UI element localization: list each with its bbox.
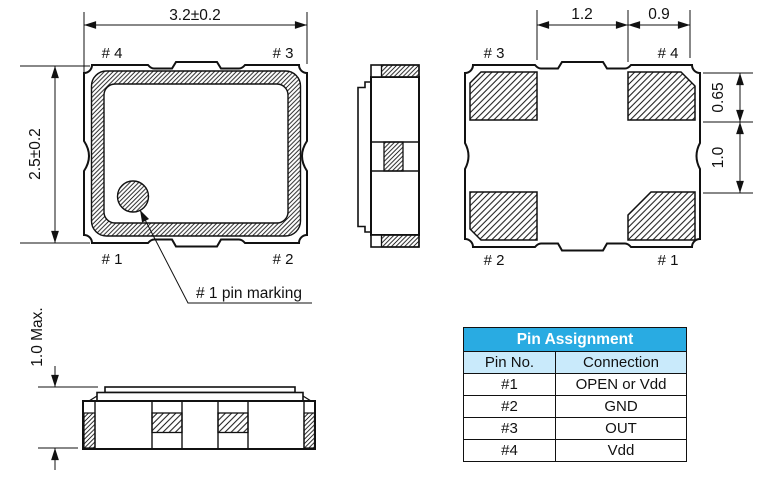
side-view-top-strip-hatch xyxy=(382,65,420,77)
bottom-view-pin3-label: # 3 xyxy=(484,45,505,62)
pin-no-cell: #4 xyxy=(464,440,556,462)
pin1-marking-label: # 1 pin marking xyxy=(196,285,302,302)
side-view-lid-outline xyxy=(358,82,371,232)
bottom-view-pin1-label: # 1 xyxy=(658,252,679,269)
front-view-right-castellation-hatch xyxy=(304,413,315,448)
table-header-row: Pin No. Connection xyxy=(464,352,687,374)
bottom-view-dim-1_0-label: 1.0 xyxy=(710,146,727,168)
front-view-lid-base xyxy=(97,393,303,402)
table-title: Pin Assignment xyxy=(464,328,687,352)
table-row: #3 OUT xyxy=(464,418,687,440)
front-view-height-dim-label: 1.0 Max. xyxy=(29,307,46,366)
front-view-left-castellation-hatch xyxy=(84,413,95,448)
datasheet-package-drawing: 3.2±0.2 2.5±0.2 # 4 # 3 # 1 # 2 # 1 pin … xyxy=(0,0,779,483)
table-row: #1 OPEN or Vdd xyxy=(464,374,687,396)
top-view-pin3-label: # 3 xyxy=(273,45,294,62)
table-title-row: Pin Assignment xyxy=(464,328,687,352)
pad-4 xyxy=(628,72,695,120)
table-row: #2 GND xyxy=(464,396,687,418)
connection-cell: OPEN or Vdd xyxy=(556,374,687,396)
top-view-pin2-label: # 2 xyxy=(273,251,294,268)
bottom-view-dim-0_9-label: 0.9 xyxy=(648,6,670,23)
pin-no-cell: #2 xyxy=(464,396,556,418)
top-view-width-dim-label: 3.2±0.2 xyxy=(169,7,221,24)
front-view xyxy=(38,366,315,470)
side-view xyxy=(358,65,419,247)
column-header-connection: Connection xyxy=(556,352,687,374)
pad-3 xyxy=(470,72,537,120)
bottom-view-pin2-label: # 2 xyxy=(484,252,505,269)
pin-assignment-table: Pin Assignment Pin No. Connection #1 OPE… xyxy=(463,327,687,462)
front-view-mid-castellation-hatch-1 xyxy=(152,413,182,433)
bottom-view-dim-1_2-label: 1.2 xyxy=(571,6,593,23)
connection-cell: Vdd xyxy=(556,440,687,462)
bottom-view xyxy=(465,10,753,251)
bottom-view-dim-0_65-label: 0.65 xyxy=(710,82,727,112)
pad-2 xyxy=(470,192,537,240)
side-view-mid-hatch xyxy=(384,142,403,171)
column-header-pin-no: Pin No. xyxy=(464,352,556,374)
front-view-body xyxy=(83,401,315,449)
pin-no-cell: #1 xyxy=(464,374,556,396)
table-row: #4 Vdd xyxy=(464,440,687,462)
top-view-height-dim-label: 2.5±0.2 xyxy=(27,128,44,180)
pin1-marking-circle xyxy=(118,181,149,212)
connection-cell: OUT xyxy=(556,418,687,440)
top-view-pin1-label: # 1 xyxy=(102,251,123,268)
connection-cell: GND xyxy=(556,396,687,418)
top-view-pin4-label: # 4 xyxy=(102,45,123,62)
bottom-view-pin4-label: # 4 xyxy=(658,45,679,62)
side-view-bottom-strip-hatch xyxy=(382,235,420,247)
front-view-mid-castellation-hatch-2 xyxy=(218,413,248,433)
pin-no-cell: #3 xyxy=(464,418,556,440)
top-view xyxy=(20,12,312,303)
front-view-lid-top xyxy=(105,387,295,393)
